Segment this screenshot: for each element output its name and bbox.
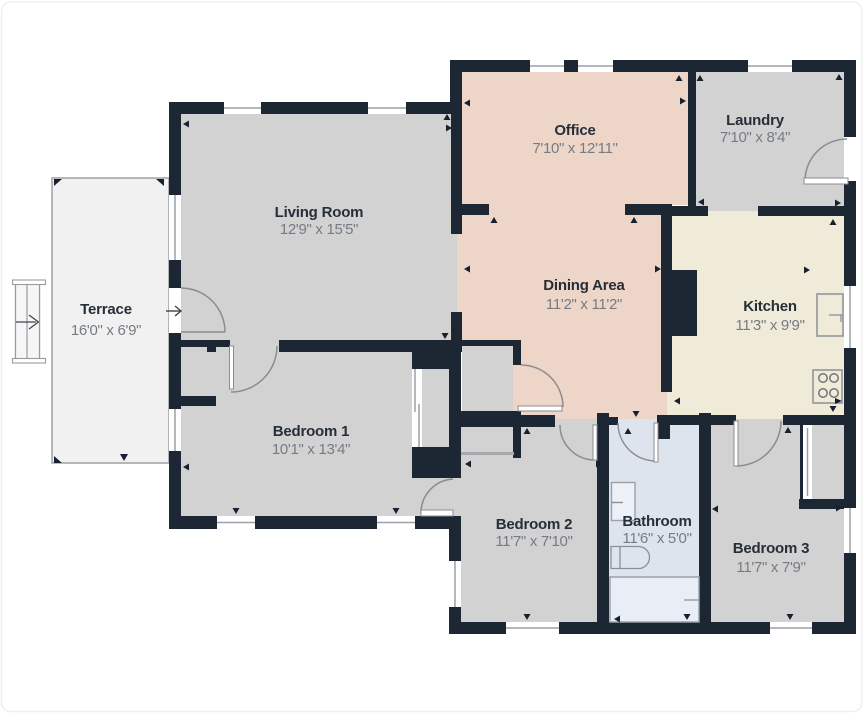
svg-text:11'3" x 9'9": 11'3" x 9'9": [735, 317, 804, 334]
svg-text:Terrace: Terrace: [80, 301, 132, 318]
svg-text:Kitchen: Kitchen: [743, 298, 797, 315]
svg-text:7'10" x 8'4": 7'10" x 8'4": [720, 129, 790, 146]
svg-text:Bedroom 2: Bedroom 2: [496, 516, 573, 533]
svg-text:12'9" x 15'5": 12'9" x 15'5": [280, 221, 358, 238]
svg-text:10'1" x 13'4": 10'1" x 13'4": [272, 441, 350, 458]
svg-text:Living Room: Living Room: [275, 204, 364, 221]
svg-text:Bedroom 3: Bedroom 3: [733, 540, 810, 557]
svg-text:7'10" x 12'11": 7'10" x 12'11": [532, 140, 617, 157]
svg-text:Office: Office: [554, 122, 595, 139]
svg-text:Laundry: Laundry: [726, 112, 785, 129]
svg-text:Bedroom 1: Bedroom 1: [273, 423, 350, 440]
svg-text:16'0" x 6'9": 16'0" x 6'9": [71, 322, 141, 339]
svg-text:11'7" x 7'9": 11'7" x 7'9": [736, 559, 805, 576]
svg-text:Bathroom: Bathroom: [622, 513, 691, 530]
svg-text:11'7" x 7'10": 11'7" x 7'10": [495, 533, 572, 550]
svg-text:Dining Area: Dining Area: [543, 277, 625, 294]
svg-text:11'6" x 5'0": 11'6" x 5'0": [622, 530, 691, 547]
svg-text:11'2" x 11'2": 11'2" x 11'2": [546, 296, 622, 313]
